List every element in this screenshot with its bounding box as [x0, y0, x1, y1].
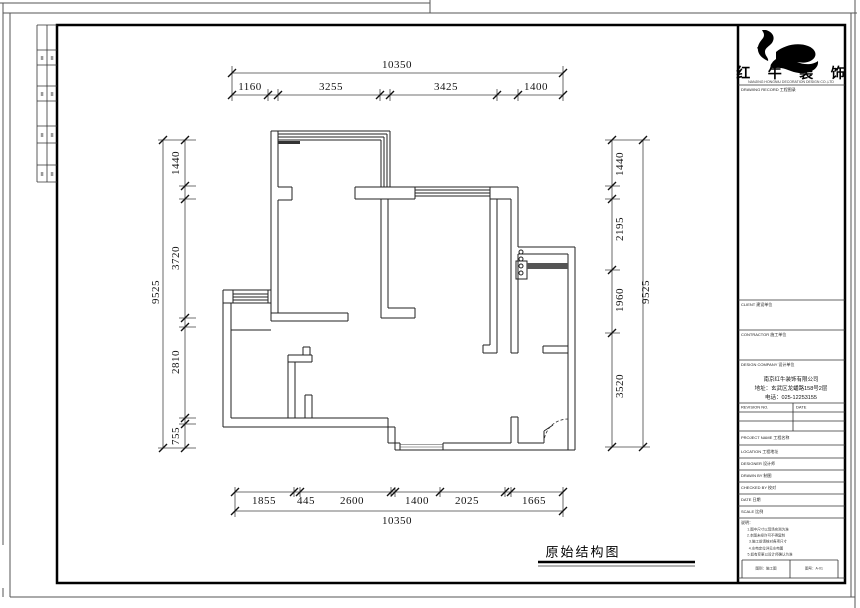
tb-notes-label: 说明： [741, 520, 753, 526]
outer-frame [0, 0, 857, 608]
tb-box3-label: CLIENT 建设单位 [741, 302, 772, 308]
tb-company-line-3: 电话：025-12253155 [765, 393, 817, 401]
dim-left-seg-3: 2810 [170, 350, 182, 374]
logo-subtext: NANJING HONGNIU DECORATION DESIGN CO.,LT… [748, 80, 834, 84]
dim-left-total: 9525 [150, 280, 162, 304]
dim-right-total: 9525 [640, 280, 652, 304]
floor-plan-walls [223, 131, 575, 450]
dim-top-seg-2: 3255 [319, 81, 343, 93]
strip-cell: ≣ [40, 91, 43, 96]
dimension-lines [158, 66, 650, 517]
title-underline [538, 562, 695, 566]
tb-note-3: 3.施工前请核对各项尺寸 [749, 540, 787, 545]
tb-footer-left: 图别：施工图 [756, 567, 777, 572]
left-strip-grid [37, 25, 57, 182]
strip-cell: ≣ [40, 55, 43, 60]
strip-cell: ≣ [50, 171, 53, 176]
dim-top-seg-3: 3425 [434, 81, 458, 93]
tb-revision-date-label: DATE [796, 405, 806, 410]
tb-company-line-2: 地址：玄武区龙蟠路158号2层 [755, 384, 828, 392]
tb-note-5: 5.如有变更以设计师确认为准 [748, 553, 793, 558]
strip-cell: ≣ [40, 132, 43, 137]
tb-footer-right: 图号：A-01 [805, 567, 823, 572]
tb-row-project: PROJECT NAME 工程名称 [741, 435, 789, 441]
tb-box4-label: CONTRACTOR 施工单位 [741, 332, 786, 338]
sheet-linework [0, 0, 860, 608]
tb-company-label: DESIGN COMPANY 设计单位 [741, 362, 794, 368]
tb-row-scale: SCALE 比例 [741, 509, 763, 515]
strip-cell: ≣ [40, 171, 43, 176]
tb-row-checked: CHECKED BY 校对 [741, 485, 776, 491]
dim-left-seg-2: 3720 [170, 246, 182, 270]
dim-bottom-seg-1: 1855 [252, 495, 276, 507]
strip-cell: ≣ [50, 132, 53, 137]
dim-left-seg-4: 755 [170, 427, 182, 445]
cad-sheet: 10350 1160 3255 3425 1400 1855 445 2600 … [0, 0, 860, 608]
door-swing-arc [544, 419, 568, 443]
tb-row-location: LOCATION 工程地址 [741, 449, 778, 455]
tb-note-1: 1.图中尺寸以现场实测为准 [747, 528, 788, 533]
door-sill-lines [400, 445, 443, 448]
tb-row-date: DATE 日期 [741, 497, 760, 503]
beam-fill [278, 141, 568, 269]
tb-row-designer: DESIGNER 设计师 [741, 461, 775, 467]
strip-cell: ≣ [50, 55, 53, 60]
strip-cell: ≣ [50, 91, 53, 96]
dim-right-seg-4: 3520 [614, 374, 626, 398]
dim-bottom-seg-3: 2600 [340, 495, 364, 507]
dim-top-total: 10350 [382, 59, 412, 71]
dimension-ticks [159, 69, 647, 515]
tb-box2-label: DRAWING RECORD 工程图录 [741, 87, 796, 93]
dim-top-seg-4: 1400 [524, 81, 548, 93]
tb-company-line-1: 南京红牛装饰有限公司 [763, 375, 818, 383]
dim-right-seg-3: 1960 [614, 288, 626, 312]
dim-right-seg-1: 1440 [614, 152, 626, 176]
dim-bottom-total: 10350 [382, 515, 412, 527]
dim-right-seg-2: 2195 [614, 217, 626, 241]
tb-note-2: 2.本图未经许可不得复制 [747, 534, 785, 539]
tb-row-drawn: DRAWN BY 制图 [741, 473, 771, 479]
tb-revision-no-label: REVISION NO. [741, 405, 768, 410]
dim-top-seg-1: 1160 [238, 81, 262, 93]
dim-bottom-seg-6: 1665 [522, 495, 546, 507]
dim-bottom-seg-4: 1400 [405, 495, 429, 507]
drawing-title: 原始结构图 [545, 542, 620, 561]
dim-bottom-seg-5: 2025 [455, 495, 479, 507]
dim-bottom-seg-2: 445 [297, 495, 315, 507]
tb-note-4: 4.水电定位详见水电图 [749, 547, 783, 552]
dim-left-seg-1: 1440 [170, 151, 182, 175]
sheet-border [57, 25, 845, 583]
